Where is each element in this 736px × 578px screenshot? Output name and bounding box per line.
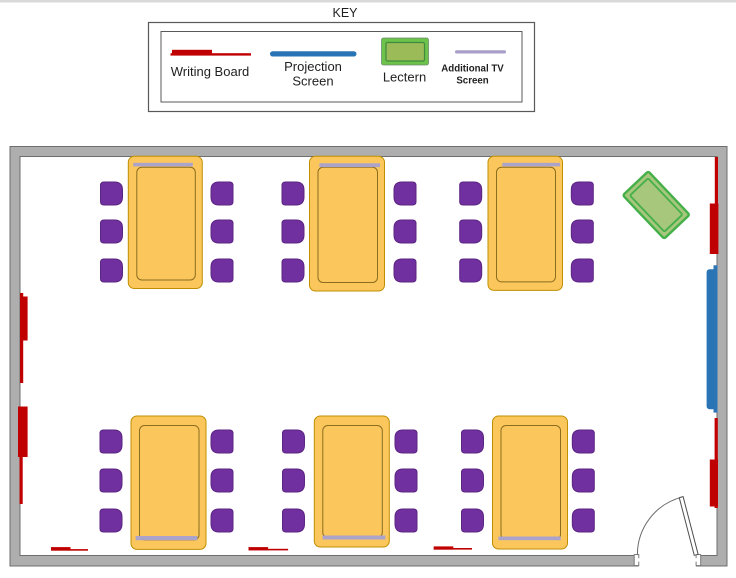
svg-text:Screen: Screen: [292, 74, 333, 89]
svg-text:Screen: Screen: [456, 76, 488, 87]
svg-text:Projection: Projection: [284, 59, 342, 74]
svg-text:KEY: KEY: [332, 6, 358, 20]
svg-text:Additional TV: Additional TV: [441, 64, 504, 75]
svg-text:Lectern: Lectern: [383, 70, 426, 85]
svg-text:Writing Board: Writing Board: [171, 64, 250, 79]
